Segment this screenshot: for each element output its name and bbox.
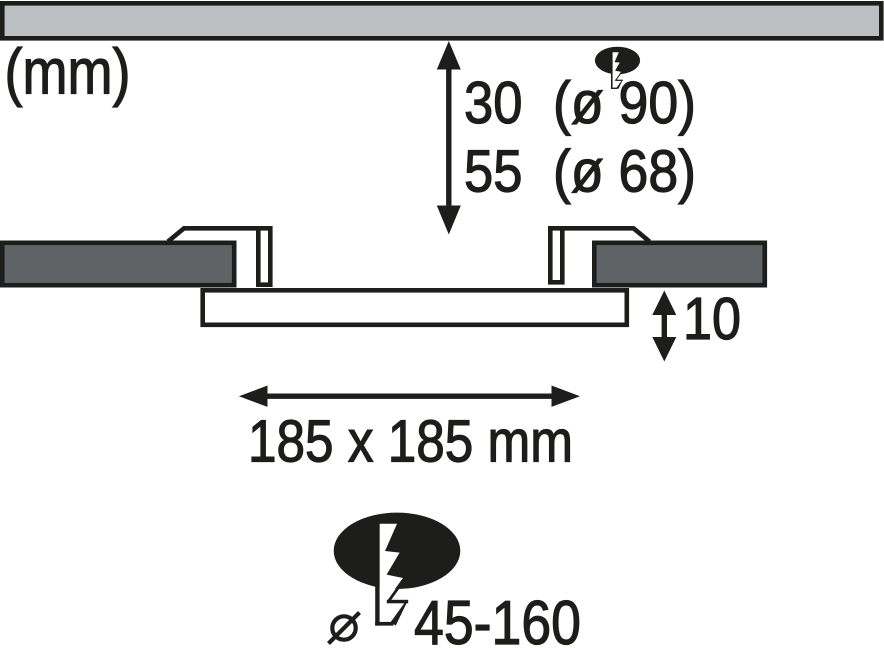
svg-text:30: 30 [464, 70, 523, 136]
svg-text:45-160: 45-160 [414, 589, 581, 648]
svg-text:(ø 68): (ø 68) [553, 139, 696, 205]
svg-text:10: 10 [683, 286, 741, 352]
svg-text:(mm): (mm) [5, 36, 131, 108]
svg-text:55: 55 [464, 139, 523, 205]
svg-text:185 x 185 mm: 185 x 185 mm [248, 409, 573, 475]
svg-text:(ø 90): (ø 90) [553, 70, 696, 136]
